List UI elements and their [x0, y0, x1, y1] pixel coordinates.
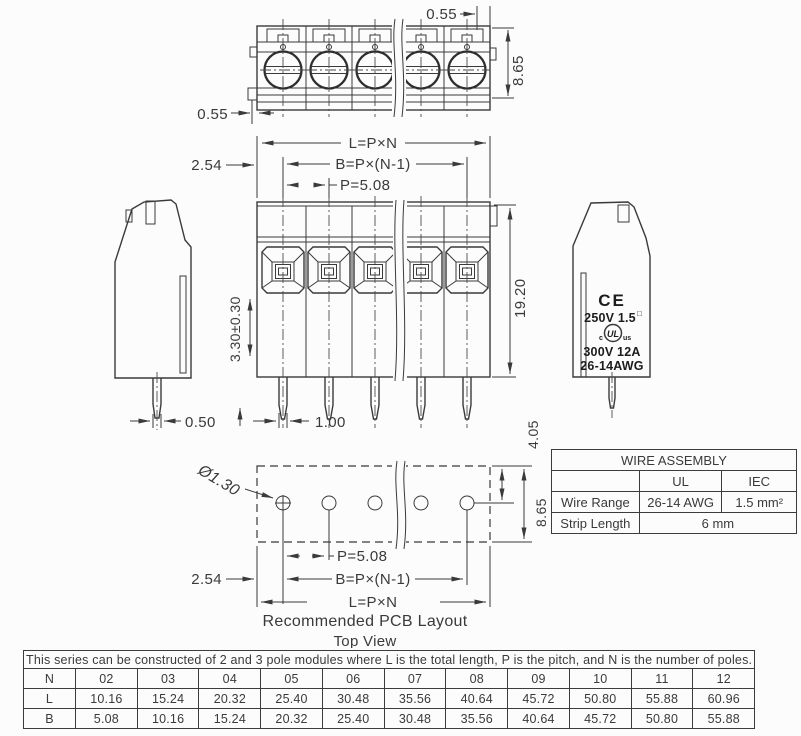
- technical-drawing: 0.55 8.65 0.55: [0, 0, 801, 648]
- n-cell: 12: [693, 669, 755, 689]
- l-cell: 40.64: [446, 689, 508, 709]
- n-cell: 08: [446, 669, 508, 689]
- wire-table-title: WIRE ASSEMBLY: [552, 450, 797, 471]
- hole-diameter-label: Ø1.30: [194, 461, 242, 499]
- dimension-table-caption: This series can be constructed of 2 and …: [24, 651, 755, 669]
- wire-table-col-ul: UL: [639, 471, 722, 492]
- b-cell: 20.32: [261, 709, 323, 729]
- b-cell: 25.40: [322, 709, 384, 729]
- n-cell: 06: [322, 669, 384, 689]
- ce-mark: CE: [598, 291, 626, 310]
- dim-mounting-label: B=P×(N-1): [335, 156, 410, 173]
- pcb-dimensions: Ø1.30 P=5.08 B=P×(N-1) L=P×N 2.54 4.0: [191, 420, 549, 611]
- pcb-dim-edge-offset-label: 2.54: [191, 571, 222, 588]
- top-view-dimensions: 0.55 8.65 0.55: [197, 6, 527, 124]
- pcb-dim-total-length-label: L=P×N: [349, 594, 398, 611]
- rating-voltage: 250V 1.5: [584, 311, 636, 325]
- wire-range-ul: 26-14 AWG: [639, 492, 722, 513]
- l-cell: 15.24: [137, 689, 199, 709]
- l-cell: 25.40: [261, 689, 323, 709]
- dim-height-label: 19.20: [512, 278, 529, 318]
- l-cell: 50.80: [569, 689, 631, 709]
- n-cell: 05: [261, 669, 323, 689]
- front-view-drawing: L=P×N B=P×(N-1) P=5.08 2.54 3.30±0.30: [191, 135, 529, 431]
- b-cell: 55.88: [693, 709, 755, 729]
- b-cell: 45.72: [569, 709, 631, 729]
- row-label-n: N: [24, 669, 76, 689]
- dimension-table: This series can be constructed of 2 and …: [23, 650, 755, 729]
- svg-text:us: us: [623, 335, 631, 342]
- l-cell: 45.72: [508, 689, 570, 709]
- left-side-view-drawing: 0.50: [115, 200, 216, 431]
- pcb-subcaption: Top View: [334, 633, 397, 648]
- pcb-dim-hole-offset-label: 4.05: [525, 420, 541, 449]
- n-cell: 03: [137, 669, 199, 689]
- l-cell: 30.48: [322, 689, 384, 709]
- right-side-view-drawing: CE 250V 1.5 □ c UL us 300V 12A 26-14AWG: [573, 202, 650, 418]
- l-cell: 20.32: [199, 689, 261, 709]
- wire-range-label: Wire Range: [552, 492, 640, 513]
- n-cell: 10: [569, 669, 631, 689]
- n-cell: 04: [199, 669, 261, 689]
- n-cell: 09: [508, 669, 570, 689]
- rating-voltage-sup: □: [637, 309, 642, 318]
- dim-depth-label: 8.65: [510, 55, 527, 86]
- front-view-dimensions: L=P×N B=P×(N-1) P=5.08 2.54 3.30±0.30: [191, 135, 529, 431]
- b-cell: 35.56: [446, 709, 508, 729]
- strip-length-label: Strip Length: [552, 513, 640, 534]
- b-cell: 30.48: [384, 709, 446, 729]
- datasheet-page: { "colors": { "background": "#fcfcfc", "…: [0, 0, 801, 736]
- n-cell: 07: [384, 669, 446, 689]
- dim-total-length-label: L=P×N: [349, 135, 398, 152]
- product-markings: CE 250V 1.5 □ c UL us 300V 12A 26-14AWG: [580, 291, 643, 373]
- dim-wall-top-label: 0.55: [426, 6, 457, 23]
- row-label-b: B: [24, 709, 76, 729]
- ul-mark: c UL us: [599, 325, 631, 343]
- b-cell: 5.08: [76, 709, 138, 729]
- dim-edge-offset-label: 2.54: [191, 157, 222, 174]
- dim-pitch-label: P=5.08: [340, 177, 390, 194]
- table-row-l: L 10.16 15.24 20.32 25.40 30.48 35.56 40…: [24, 689, 755, 709]
- top-view-drawing: 0.55 8.65 0.55: [197, 6, 527, 124]
- l-cell: 10.16: [76, 689, 138, 709]
- pcb-dim-depth-label: 8.65: [533, 498, 549, 527]
- wire-table-empty-cell: [552, 471, 640, 492]
- wire-table-col-iec: IEC: [722, 471, 797, 492]
- pcb-dim-mounting-label: B=P×(N-1): [335, 571, 410, 588]
- row-label-l: L: [24, 689, 76, 709]
- rating-current: 300V 12A: [583, 345, 640, 359]
- n-cell: 02: [76, 669, 138, 689]
- pcb-layout-drawing: Ø1.30 P=5.08 B=P×(N-1) L=P×N 2.54 4.0: [191, 420, 549, 648]
- l-cell: 60.96: [693, 689, 755, 709]
- wire-assembly-table: WIRE ASSEMBLY UL IEC Wire Range 26-14 AW…: [551, 449, 797, 534]
- b-cell: 40.64: [508, 709, 570, 729]
- dim-pin-thickness-label: 1.00: [315, 414, 346, 431]
- strip-length-value: 6 mm: [639, 513, 796, 534]
- l-cell: 55.88: [631, 689, 693, 709]
- b-cell: 15.24: [199, 709, 261, 729]
- rating-wire: 26-14AWG: [580, 359, 643, 373]
- table-row-n: N 02 03 04 05 06 07 08 09 10 11 12: [24, 669, 755, 689]
- table-row-b: B 5.08 10.16 15.24 20.32 25.40 30.48 35.…: [24, 709, 755, 729]
- dim-clamp-range-label: 3.30±0.30: [227, 296, 243, 362]
- l-cell: 35.56: [384, 689, 446, 709]
- pcb-dim-pitch-label: P=5.08: [337, 548, 387, 565]
- svg-text:c: c: [599, 335, 603, 342]
- b-cell: 10.16: [137, 709, 199, 729]
- svg-text:UL: UL: [607, 329, 619, 339]
- pcb-caption: Recommended PCB Layout: [263, 613, 468, 630]
- b-cell: 50.80: [631, 709, 693, 729]
- dim-wall-bottom-label: 0.55: [197, 106, 228, 123]
- dim-pin-width-label: 0.50: [185, 414, 216, 431]
- wire-range-iec: 1.5 mm²: [722, 492, 797, 513]
- n-cell: 11: [631, 669, 693, 689]
